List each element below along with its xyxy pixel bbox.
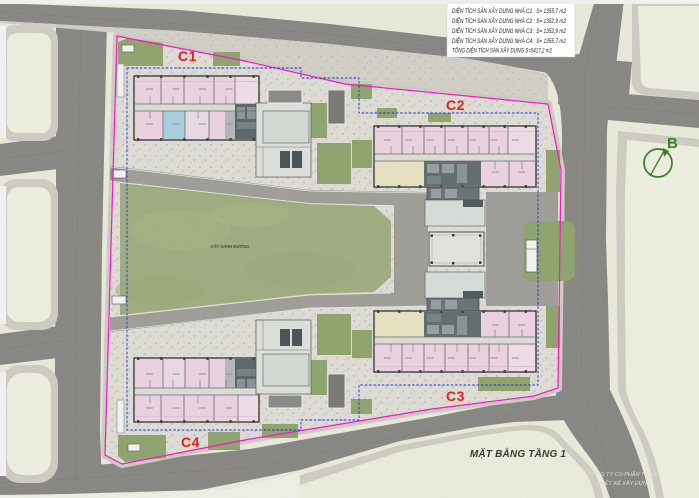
svg-text:DIỆN TÍCH SÀN XÂY DỰNG NHÀ C3: DIỆN TÍCH SÀN XÂY DỰNG NHÀ C3 : S= 1352,… <box>452 27 567 35</box>
svg-text:DIỆN TÍCH SÀN XÂY DỰNG NHÀ C4: DIỆN TÍCH SÀN XÂY DỰNG NHÀ C4 : S= 1355,… <box>452 37 567 45</box>
svg-text:CÔNG TY CỔ PHẦN TƯ VẤN: CÔNG TY CỔ PHẦN TƯ VẤN <box>588 471 662 478</box>
svg-text:DIỆN TÍCH SÀN XÂY DỰNG NHÀ C2: DIỆN TÍCH SÀN XÂY DỰNG NHÀ C2 : S= 1352,… <box>452 17 567 25</box>
svg-text:C3: C3 <box>446 388 465 404</box>
svg-text:THIẾT KẾ XÂY DỰNG: THIẾT KẾ XÂY DỰNG <box>596 479 652 487</box>
svg-text:CÂY XANH ĐƯỜNG: CÂY XANH ĐƯỜNG <box>210 244 249 249</box>
svg-text:C4: C4 <box>181 434 200 450</box>
svg-text:TỔNG DIỆN TÍCH SÀN XÂY DỰNG S=: TỔNG DIỆN TÍCH SÀN XÂY DỰNG S=5417,2 m2 <box>452 47 552 55</box>
svg-text:B: B <box>667 135 678 152</box>
svg-text:DIỆN TÍCH SÀN XÂY DỰNG NHÀ C1: DIỆN TÍCH SÀN XÂY DỰNG NHÀ C1 : S= 1355,… <box>452 7 567 15</box>
svg-text:MẶT BẰNG TẦNG 1: MẶT BẰNG TẦNG 1 <box>470 447 567 460</box>
svg-text:C2: C2 <box>446 97 465 113</box>
svg-text:C1: C1 <box>178 48 197 64</box>
